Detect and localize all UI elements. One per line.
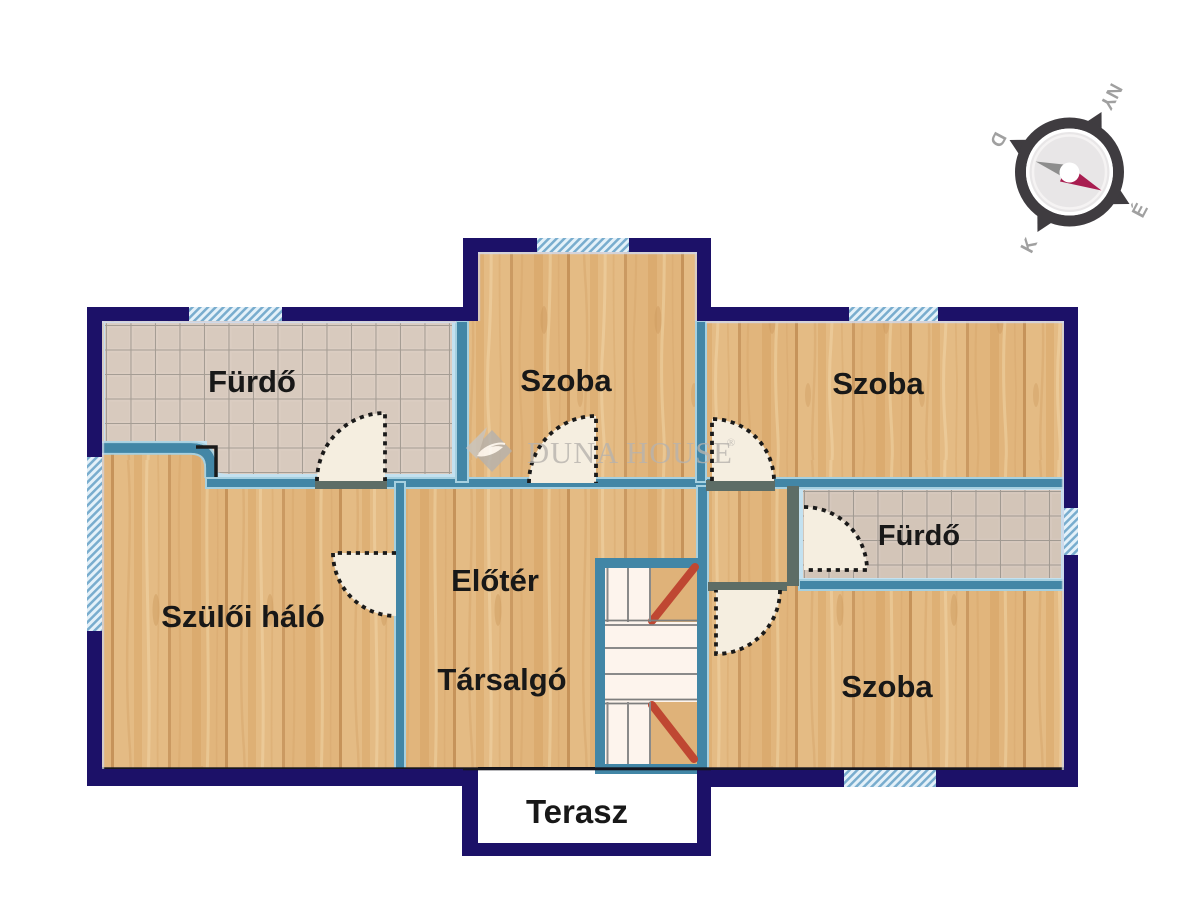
svg-text:Terasz: Terasz [526,793,628,830]
svg-text:Szoba: Szoba [520,363,612,398]
svg-text:Szoba: Szoba [832,366,924,401]
svg-text:Fürdő: Fürdő [208,364,296,399]
svg-text:Fürdő: Fürdő [878,520,960,552]
svg-text:DUNA HOUSE: DUNA HOUSE [527,436,733,470]
svg-text:Szoba: Szoba [841,669,933,704]
svg-text:®: ® [727,437,735,449]
svg-text:Előtér: Előtér [451,563,539,598]
svg-text:Társalgó: Társalgó [437,662,566,697]
svg-text:Szülői háló: Szülői háló [161,599,325,634]
